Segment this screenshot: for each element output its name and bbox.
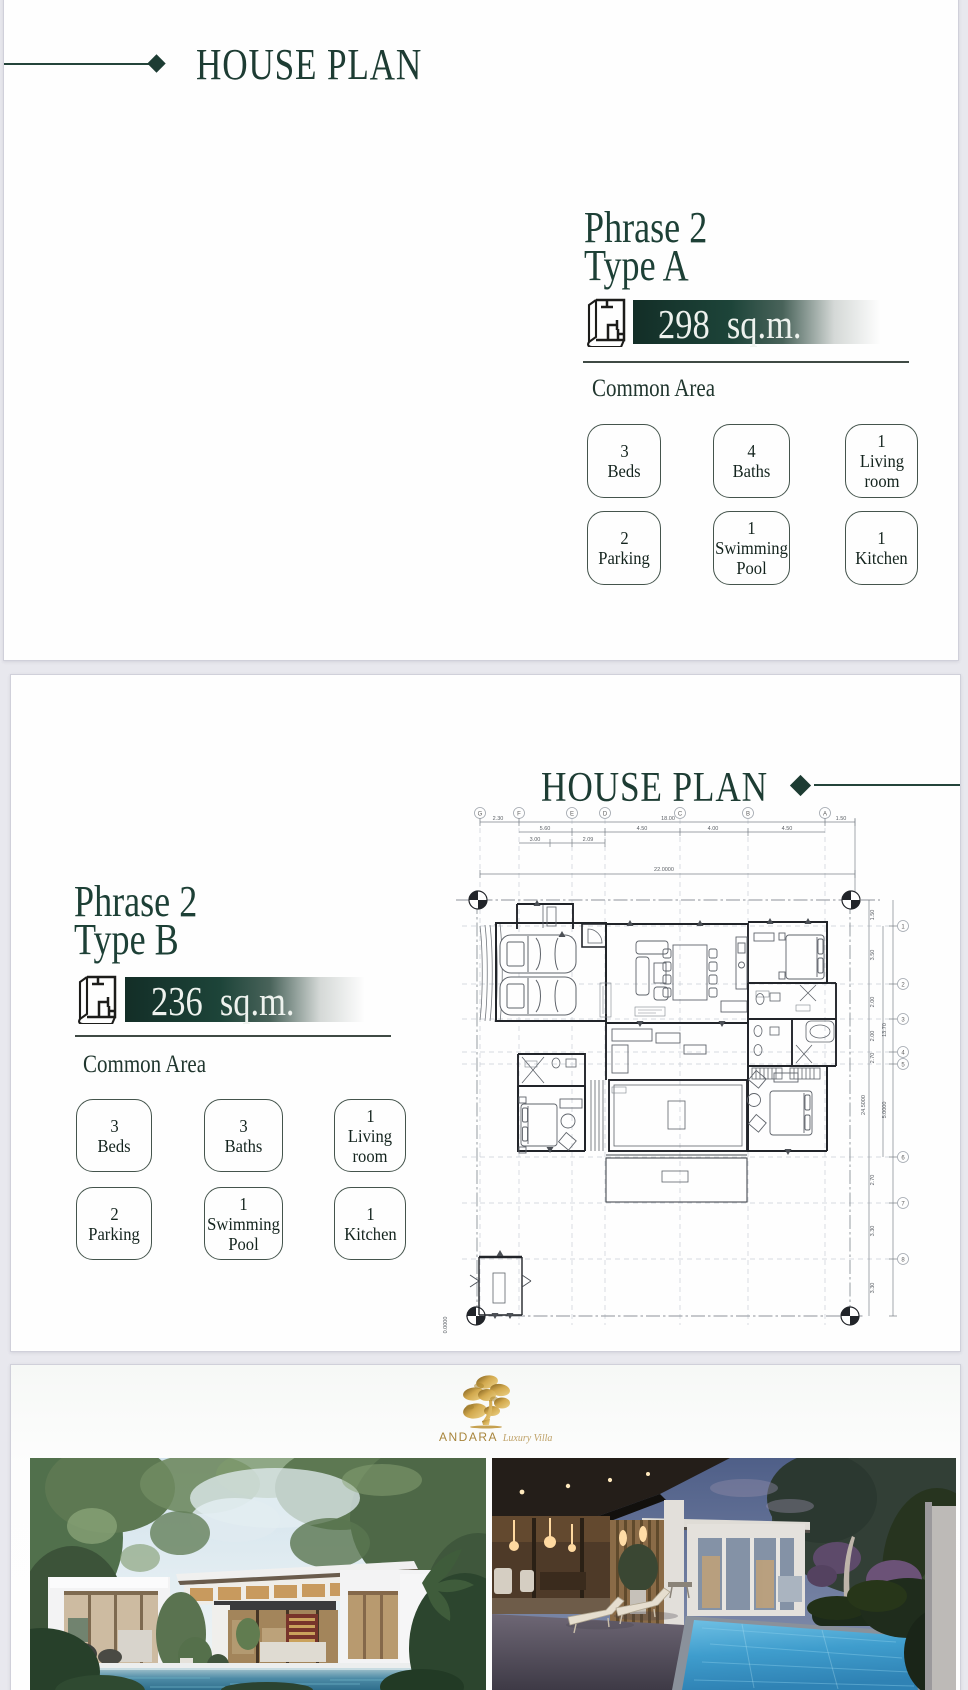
- svg-text:24.5000: 24.5000: [861, 1095, 867, 1115]
- svg-text:B: B: [746, 812, 750, 818]
- svg-text:2.70: 2.70: [870, 1175, 876, 1186]
- svg-text:4.50: 4.50: [637, 826, 648, 832]
- svg-text:1.50: 1.50: [870, 910, 876, 921]
- svg-text:2.09: 2.09: [583, 837, 594, 843]
- svg-text:13.70: 13.70: [882, 1023, 888, 1037]
- svg-text:2.00: 2.00: [870, 997, 876, 1008]
- svg-text:4.50: 4.50: [782, 826, 793, 832]
- svg-text:1.50: 1.50: [836, 816, 847, 822]
- svg-text:2.30: 2.30: [493, 816, 504, 822]
- svg-text:C: C: [678, 812, 683, 818]
- svg-text:G: G: [478, 812, 483, 818]
- svg-text:3.00: 3.00: [530, 837, 541, 843]
- svg-text:0.0000: 0.0000: [443, 1317, 449, 1334]
- svg-text:5.60: 5.60: [540, 826, 551, 832]
- svg-text:5.0000: 5.0000: [882, 1102, 888, 1119]
- svg-text:A: A: [823, 812, 827, 818]
- svg-text:22.0000: 22.0000: [654, 867, 674, 873]
- svg-text:4.00: 4.00: [708, 826, 719, 832]
- svg-text:D: D: [603, 812, 608, 818]
- svg-text:3.30: 3.30: [870, 1283, 876, 1294]
- svg-text:2.00: 2.00: [870, 1031, 876, 1042]
- svg-text:18.00: 18.00: [661, 816, 675, 822]
- svg-text:E: E: [570, 812, 574, 818]
- svg-text:3.30: 3.30: [870, 1226, 876, 1237]
- svg-text:F: F: [517, 812, 521, 818]
- svg-text:3.50: 3.50: [870, 950, 876, 961]
- svg-text:2.70: 2.70: [870, 1053, 876, 1064]
